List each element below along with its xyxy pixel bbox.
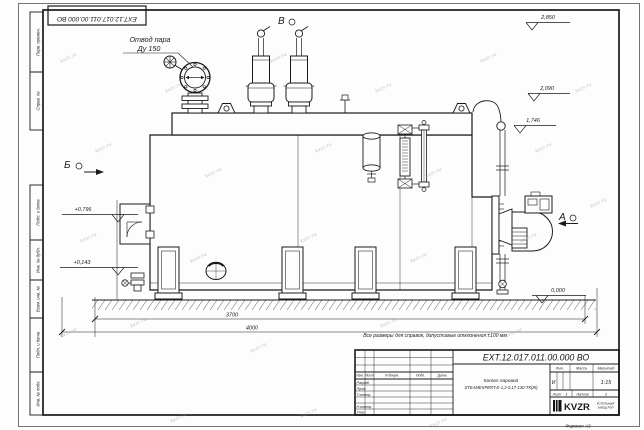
- drawing-sheet: Перв. примен. Справ. № Подп. и дата Инв.…: [0, 0, 644, 430]
- reference-note: Все размеры для справок, допустимые откл…: [363, 333, 507, 339]
- boiler-drawing: Перв. примен. Справ. № Подп. и дата Инв.…: [0, 0, 644, 430]
- row-label: Пров.: [357, 387, 367, 391]
- product-name-line2: STEAMEXPERT-Е-1,2-0,17-130-ТК(Ж): [464, 385, 538, 390]
- steam-outlet-callout: Отвод пара Ду 150: [123, 35, 193, 67]
- margin-label: Подп. и дата: [36, 331, 41, 358]
- col-header: Дата: [437, 374, 447, 378]
- row-label: Т.контр.: [357, 393, 372, 397]
- margin-label: Инв. № дубл.: [36, 247, 41, 273]
- row-label: Утв.: [357, 411, 365, 415]
- mass-header: Масса: [576, 367, 587, 371]
- margin-label: Перв. примен.: [36, 28, 41, 56]
- sheet-value: 1: [565, 392, 567, 396]
- top-stamp-text: EXT.12.017.011.00.000 ВО: [57, 15, 137, 22]
- company-logo: KVZR КОТЕЛЬНЫЙ ЗАВОД РЭП: [553, 400, 614, 413]
- callout-line1: Отвод пара: [129, 35, 170, 44]
- dim-3700: 3700: [226, 313, 239, 319]
- col-header: Подп.: [416, 374, 425, 378]
- furnace-door: [120, 204, 154, 244]
- col-header: Лист: [364, 374, 374, 378]
- ground: [92, 300, 596, 310]
- margin-label: Взам. инв. №: [36, 286, 41, 312]
- margin-label: Справ. №: [36, 91, 41, 110]
- view-label-b: Б: [64, 160, 71, 171]
- scale-header: Масштаб: [598, 367, 616, 371]
- safety-valve-2: [284, 27, 315, 114]
- margin-label: Инв. № подл.: [36, 381, 41, 407]
- sheets-label: Листов: [575, 392, 589, 396]
- elevation-0796: +0,796: [75, 207, 93, 213]
- dim-4000: 4000: [246, 326, 259, 332]
- format-label: Формат А3: [565, 424, 591, 429]
- col-header: N докум.: [385, 374, 399, 378]
- small-valve: [340, 95, 350, 113]
- product-name-line1: Котел паровой: [484, 377, 519, 384]
- row-label: Разраб.: [357, 381, 370, 385]
- sheet-label: Лист: [552, 392, 562, 396]
- logo-text: KVZR: [564, 402, 590, 413]
- callout-line2: Ду 150: [137, 44, 161, 53]
- steam-outlet-valve: [164, 56, 210, 113]
- row-label: Н.контр.: [357, 405, 373, 409]
- col-header: Изм.: [356, 374, 363, 378]
- manhole: [206, 263, 226, 280]
- margin-label: Подп. и дата: [36, 199, 41, 226]
- burner: [492, 192, 553, 254]
- logo-subtitle-2: ЗАВОД РЭП: [597, 406, 614, 410]
- safety-valve-1: [246, 27, 277, 114]
- elevation-2090: 2,090: [539, 86, 555, 92]
- lit-header: Лит.: [555, 367, 564, 371]
- elevation-1746: 1,746: [526, 118, 541, 124]
- elevation-0000: 0,000: [551, 288, 566, 294]
- doc-number: EXT.12.017.011.00.000 ВО: [483, 353, 590, 363]
- scale-value: 1:15: [601, 380, 613, 386]
- view-label-v: В: [278, 16, 285, 27]
- elevation-2850: 2,850: [540, 15, 556, 21]
- elevation-0143: +0,143: [74, 260, 92, 266]
- sheets-value: 2: [604, 392, 608, 396]
- drain-valves: [122, 273, 144, 291]
- boiler-body: [150, 113, 492, 290]
- lit-value: И: [552, 380, 556, 386]
